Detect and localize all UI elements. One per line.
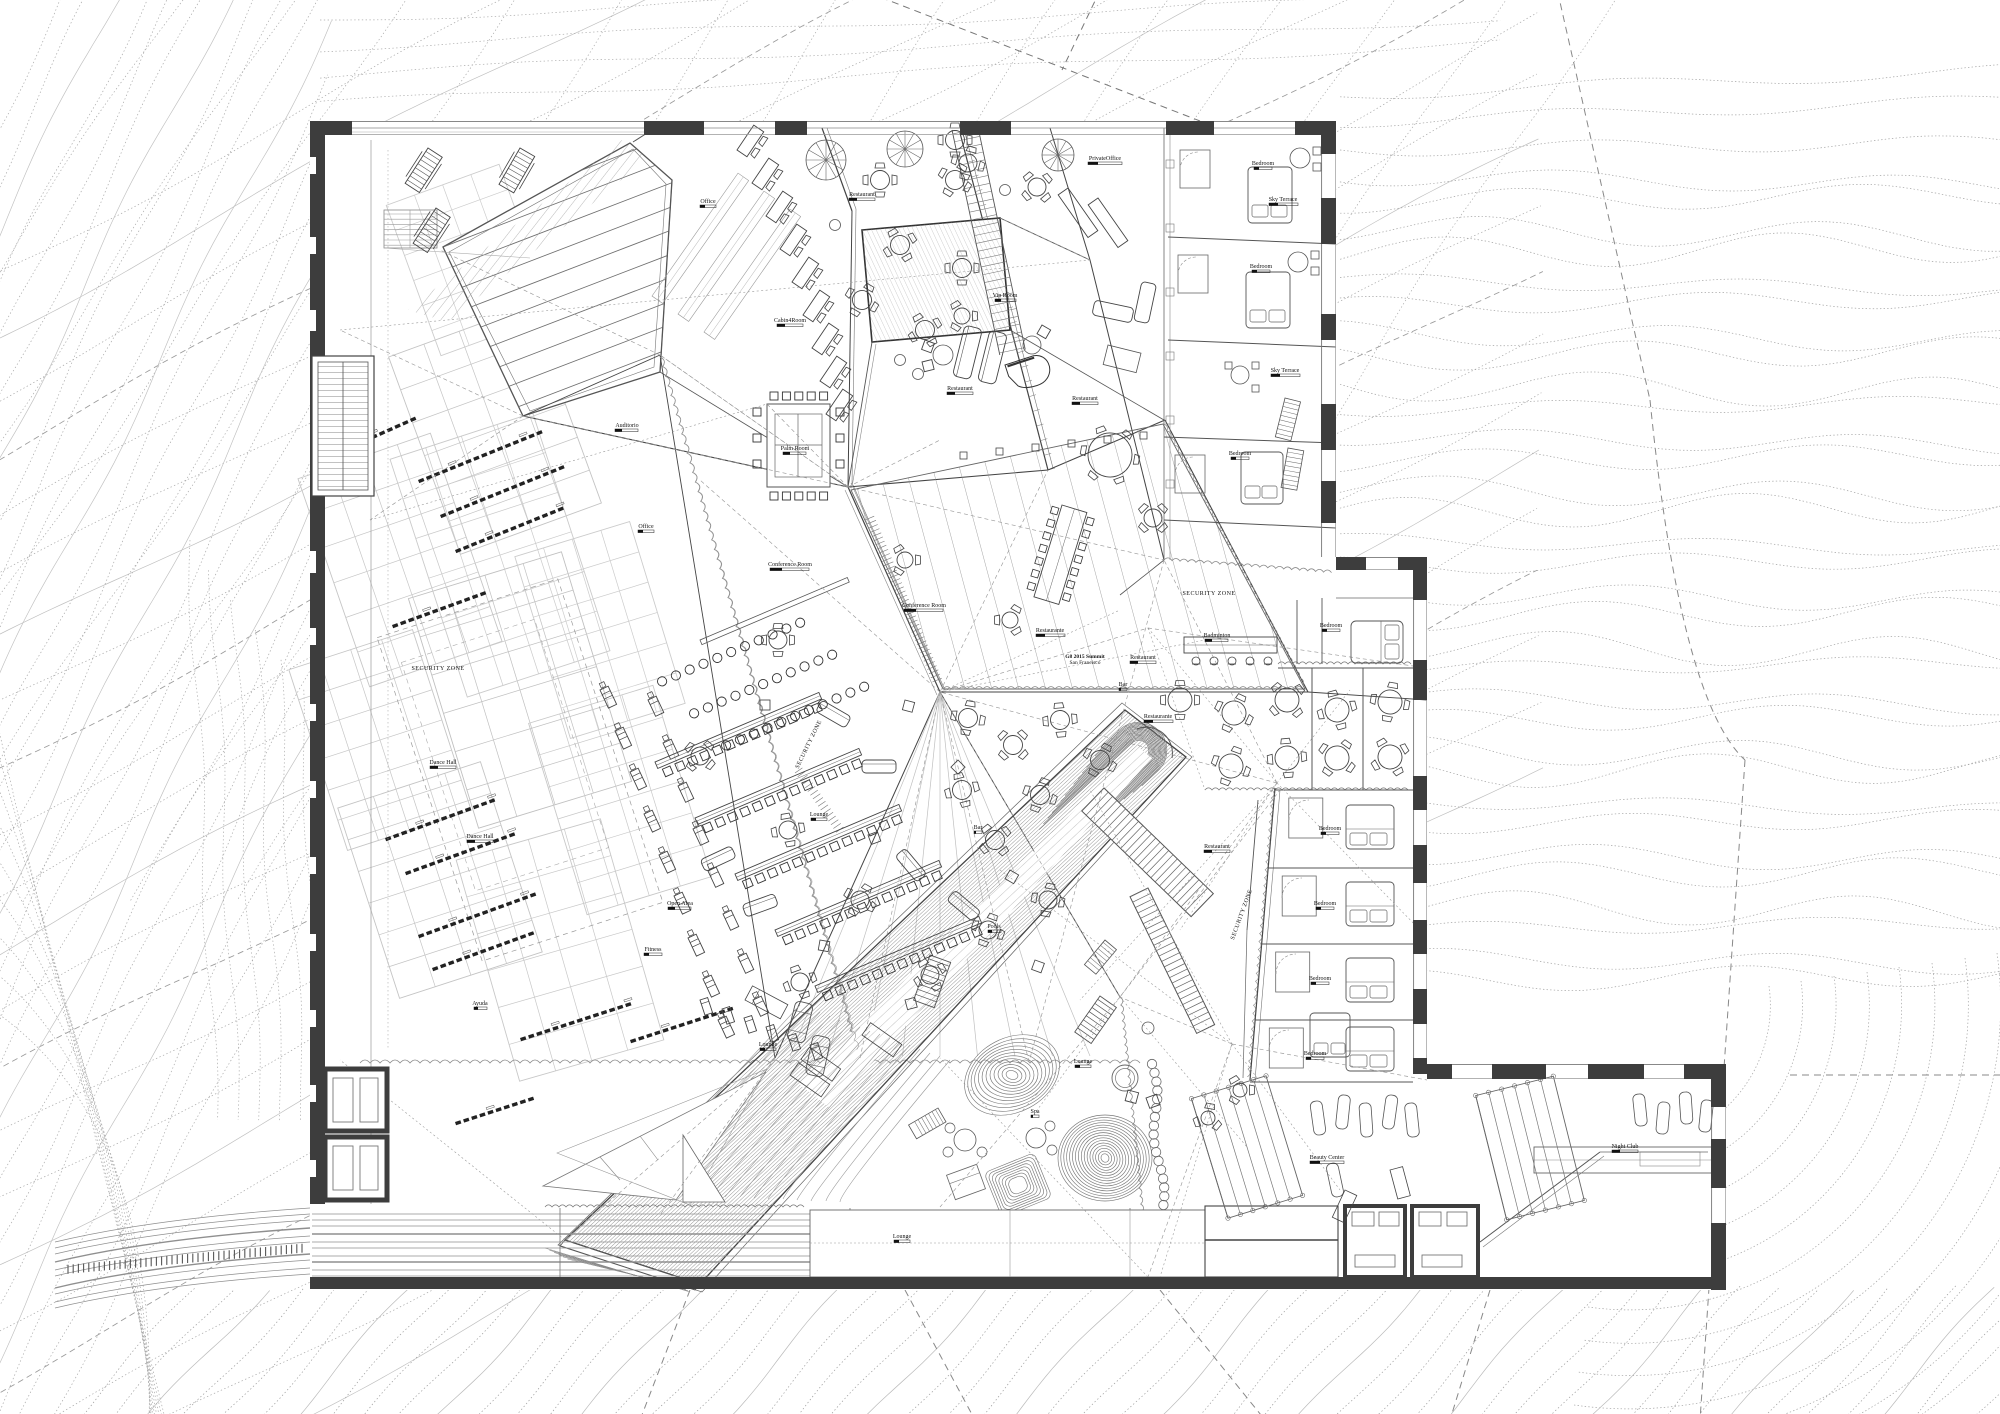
svg-text:Bedroom: Bedroom — [1314, 901, 1337, 907]
svg-text:PrivateOffice: PrivateOffice — [1089, 155, 1122, 162]
svg-text:Open Area: Open Area — [667, 901, 693, 907]
svg-text:Restaurant: Restaurant — [1072, 396, 1098, 402]
svg-text:Bedroom: Bedroom — [1229, 451, 1252, 457]
svg-text:Night Club: Night Club — [1612, 1144, 1639, 1150]
svg-text:Ayuda: Ayuda — [472, 1001, 488, 1007]
svg-text:Badminton: Badminton — [1204, 633, 1231, 639]
svg-text:Bar: Bar — [974, 825, 983, 831]
svg-text:Auditorio: Auditorio — [615, 423, 638, 429]
svg-text:Beauty Center: Beauty Center — [1310, 1155, 1345, 1161]
svg-text:Bedroom: Bedroom — [1250, 264, 1273, 270]
svg-text:Restaurant: Restaurant — [947, 386, 973, 392]
svg-text:Dance Hall: Dance Hall — [429, 760, 456, 766]
svg-text:Sky Terrace: Sky Terrace — [1269, 197, 1298, 203]
svg-text:Lounge: Lounge — [810, 812, 829, 818]
svg-text:San Francisco: San Francisco — [1069, 660, 1100, 666]
svg-text:Office: Office — [700, 198, 716, 205]
svg-text:Restaurant: Restaurant — [849, 192, 875, 198]
svg-text:Bedroom: Bedroom — [1252, 161, 1275, 167]
svg-text:Lounge: Lounge — [893, 1234, 912, 1240]
svg-text:Bedroom: Bedroom — [1309, 976, 1332, 982]
svg-text:Lounge: Lounge — [1074, 1059, 1093, 1065]
svg-text:Fitness: Fitness — [644, 947, 662, 953]
svg-text:Pools: Pools — [987, 924, 1001, 930]
svg-text:Office: Office — [638, 523, 654, 530]
svg-text:Restaurante: Restaurante — [1144, 714, 1173, 720]
svg-text:Dance Hall: Dance Hall — [466, 834, 493, 840]
svg-text:Restaurante: Restaurante — [1036, 628, 1065, 634]
svg-text:Palm Room: Palm Room — [781, 446, 810, 452]
svg-text:Conference Room: Conference Room — [902, 602, 946, 609]
svg-text:SECURITY ZONE: SECURITY ZONE — [411, 666, 464, 672]
svg-text:Lounge: Lounge — [759, 1042, 778, 1048]
svg-text:Cabin4Room: Cabin4Room — [774, 318, 806, 324]
svg-text:Vip Room: Vip Room — [993, 293, 1018, 299]
svg-text:Spa: Spa — [1031, 1109, 1040, 1115]
svg-text:Restaurant: Restaurant — [1130, 655, 1156, 661]
svg-text:Sky Terrace: Sky Terrace — [1271, 368, 1300, 374]
svg-text:Bar: Bar — [1119, 682, 1128, 688]
svg-text:Conference Room: Conference Room — [768, 561, 812, 568]
svg-text:Bedroom: Bedroom — [1319, 826, 1342, 832]
svg-text:Restaurant: Restaurant — [1204, 844, 1230, 850]
svg-text:Bedroom: Bedroom — [1304, 1051, 1327, 1057]
svg-text:SECURITY ZONE: SECURITY ZONE — [1182, 591, 1235, 597]
svg-text:Bedroom: Bedroom — [1320, 623, 1343, 629]
